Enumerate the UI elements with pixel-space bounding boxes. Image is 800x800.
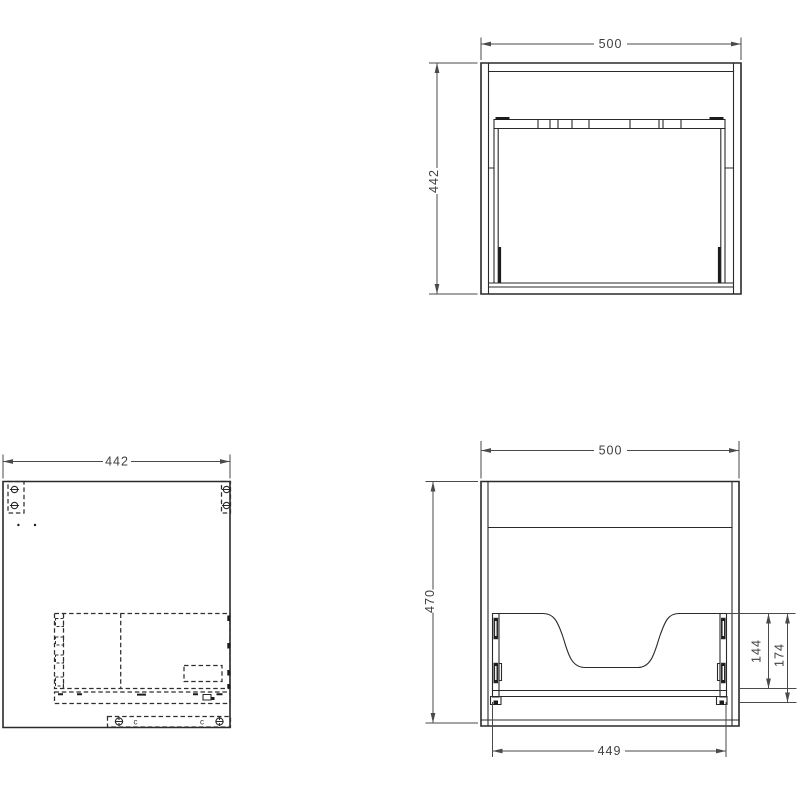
fitting-letter: c (200, 718, 204, 727)
slide-rail-marks (58, 693, 223, 700)
slot-end-marks (494, 619, 725, 683)
screw-slot-lines (116, 718, 224, 726)
front-view: 500 470 449 144 174 (423, 441, 797, 758)
cabinet-outline (481, 482, 739, 727)
side-outline (3, 482, 230, 728)
slide-dark-segments (500, 247, 719, 283)
slide-slots (494, 619, 725, 683)
dim-label-front-width: 500 (599, 444, 623, 458)
rail-feet (491, 697, 728, 705)
bottom-stretcher-lines (493, 691, 727, 697)
dim-label-side-depth: 442 (105, 455, 129, 469)
dim-front-height: 470 (423, 482, 478, 724)
hinge-screw-row: c c (115, 718, 223, 727)
dim-panel-height: 174 (773, 614, 790, 703)
side-panel-lines (489, 63, 734, 294)
dim-front-width: 500 (481, 441, 739, 479)
slide-bracket-outline (203, 695, 211, 701)
back-panel-cutout-curve (499, 614, 720, 668)
side-view: c c 442 (3, 455, 231, 728)
technical-drawing-page: 500 442 c c (0, 0, 800, 800)
cam-slot-lines (11, 490, 231, 506)
dim-label-front-height: 470 (423, 589, 437, 613)
slide-brackets (499, 664, 720, 681)
dim-label-cutout-height: 144 (750, 639, 764, 663)
dim-label-top-width: 500 (599, 37, 623, 51)
dim-bottom-width: 449 (493, 702, 727, 758)
bottom-rail-lines (489, 283, 734, 287)
dim-top-width: 500 (481, 37, 741, 60)
dim-top-depth: 442 (427, 63, 478, 294)
dim-label-bottom-width: 449 (598, 744, 622, 758)
inner-vertical-lines (494, 129, 725, 284)
dim-label-panel-height: 174 (773, 643, 787, 667)
back-rail-with-ticks (494, 120, 725, 129)
side-panel-lines (488, 482, 732, 727)
technical-drawing: 500 442 c c (0, 0, 800, 800)
drill-dots (17, 524, 36, 526)
drawer-slide-rails (493, 614, 727, 698)
fitting-letter: c (134, 718, 138, 727)
cabinet-outline (481, 63, 741, 294)
top-view: 500 442 (427, 37, 741, 294)
hidden-slide-marks (56, 619, 64, 687)
mounting-bracket-fittings (11, 486, 231, 508)
dim-label-top-depth: 442 (427, 169, 441, 193)
dim-side-depth: 442 (3, 455, 230, 479)
rail-feet-marks (494, 701, 725, 705)
hidden-drawer-parts (8, 482, 231, 728)
